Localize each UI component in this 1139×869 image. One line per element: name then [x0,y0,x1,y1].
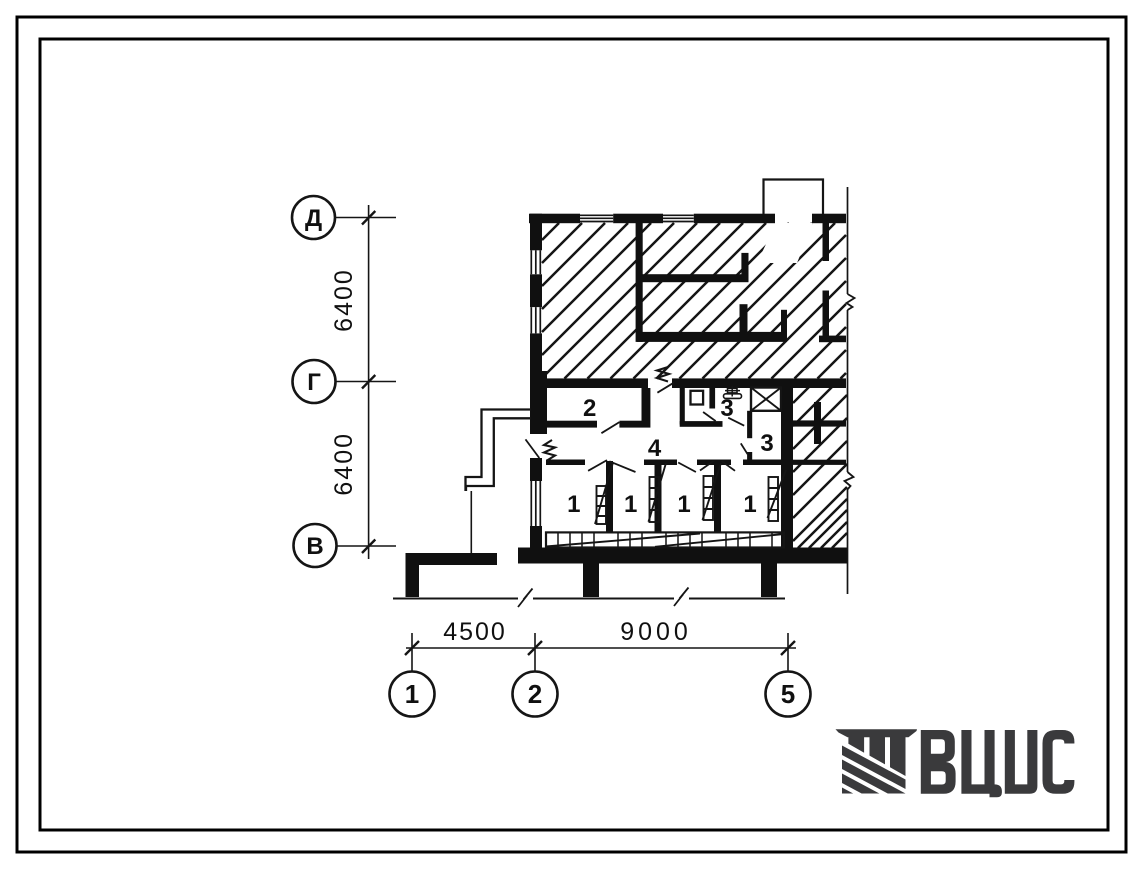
svg-text:6400: 6400 [330,432,358,496]
svg-text:4500: 4500 [443,618,507,646]
svg-text:Г: Г [307,369,321,396]
svg-text:3: 3 [760,430,773,457]
svg-text:2: 2 [528,679,542,709]
svg-text:1: 1 [624,491,637,518]
svg-text:1: 1 [405,679,419,709]
svg-text:6400: 6400 [330,268,358,332]
svg-text:Д: Д [305,205,322,232]
svg-text:5: 5 [781,679,795,709]
svg-text:9000: 9000 [620,618,692,646]
svg-text:1: 1 [677,491,690,518]
svg-text:В: В [306,533,323,560]
svg-text:3: 3 [720,395,733,422]
svg-text:1: 1 [567,491,580,518]
svg-text:4: 4 [648,435,662,462]
svg-text:2: 2 [583,395,596,422]
svg-text:1: 1 [743,491,756,518]
